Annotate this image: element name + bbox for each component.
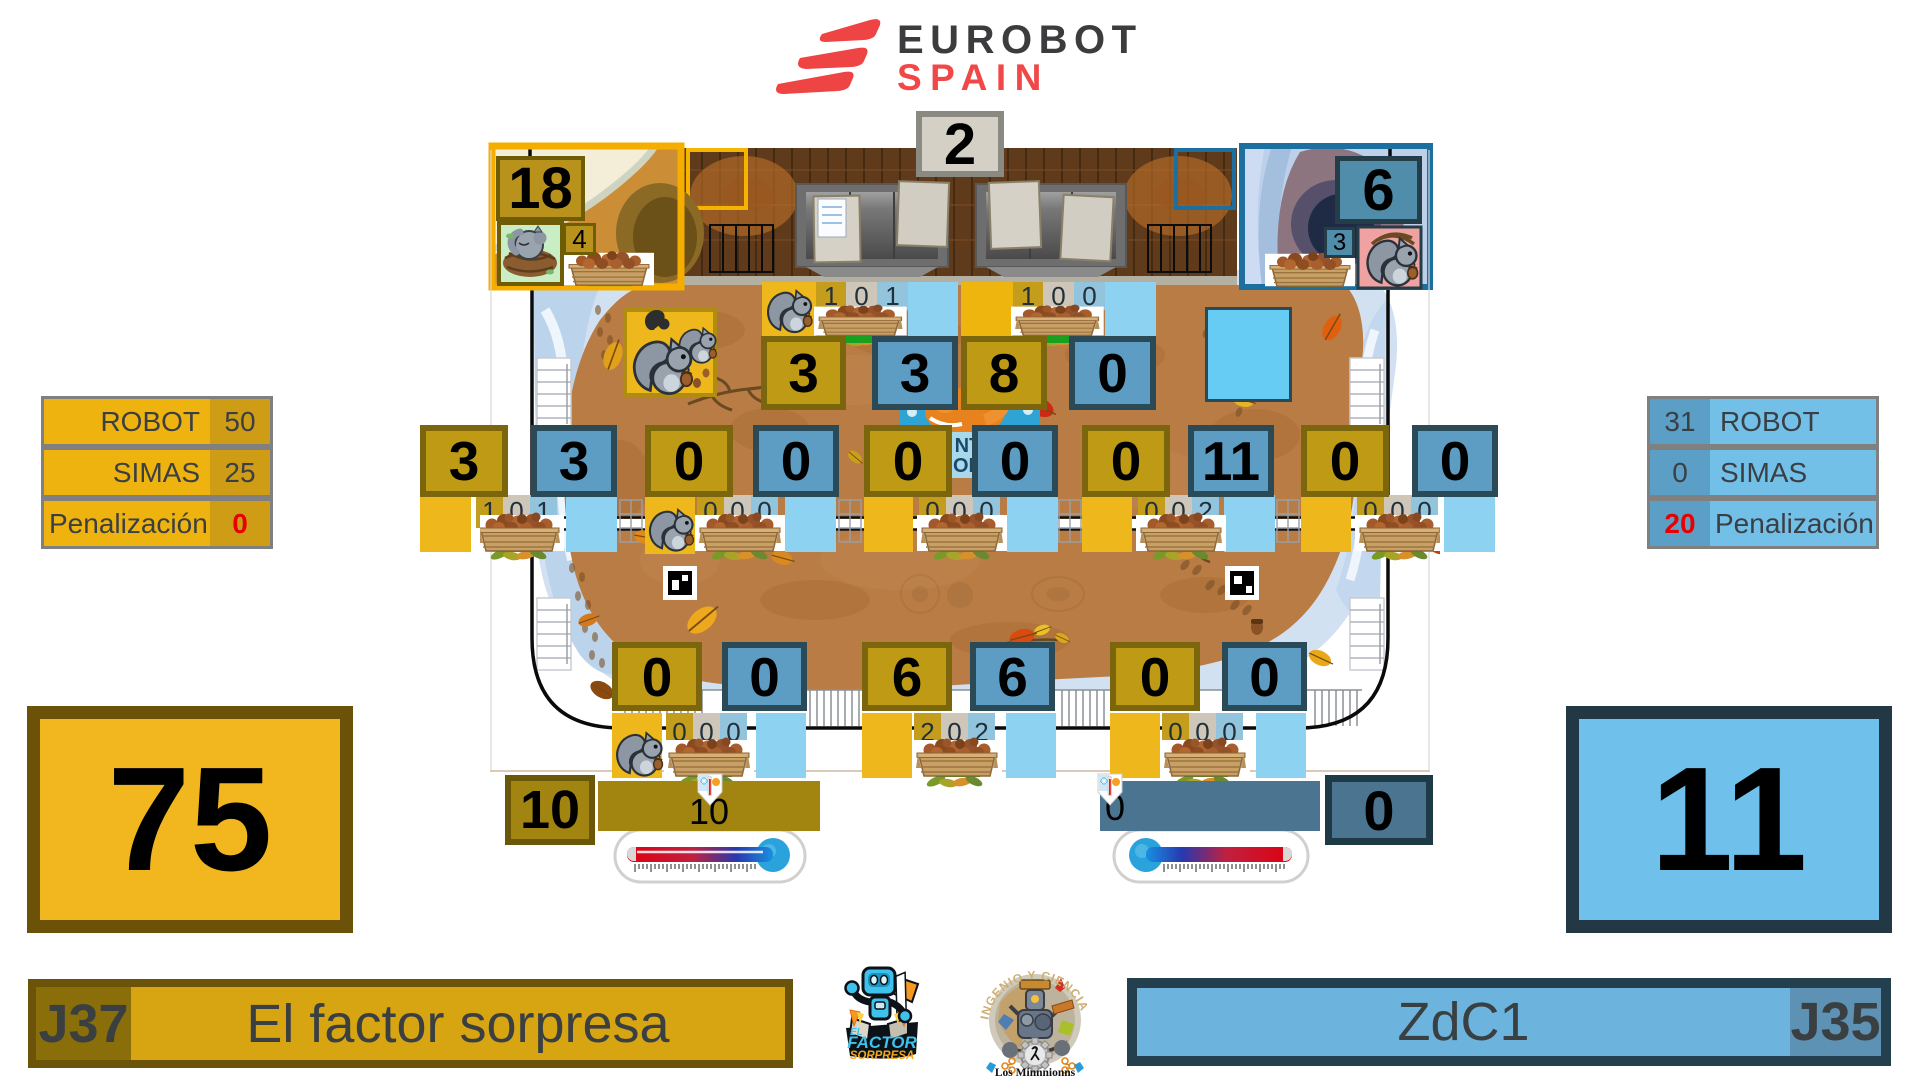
svg-text:SPAIN: SPAIN	[897, 57, 1050, 98]
svg-text:SORPRESA: SORPRESA	[850, 1050, 915, 1062]
svg-text:EUROBOT: EUROBOT	[897, 18, 1143, 62]
svg-text:Los Minnnionns: Los Minnnionns	[995, 1067, 1076, 1079]
